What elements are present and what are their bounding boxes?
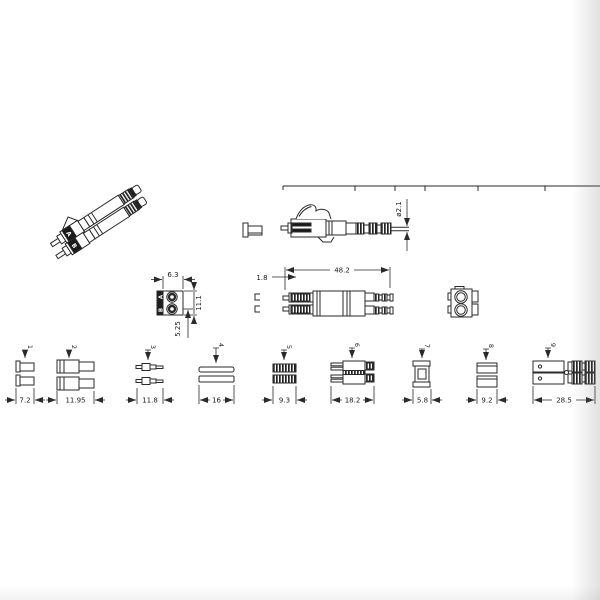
- part-8-number: 8: [487, 344, 495, 348]
- part-5-dim: 9.3: [279, 397, 290, 405]
- part-7-dim: 5.8: [417, 397, 428, 405]
- part-6-number: 6: [353, 343, 361, 347]
- dim-front-width-label: 6.3: [167, 271, 178, 279]
- side-view: [281, 205, 409, 242]
- part-4-number: 4: [217, 343, 225, 347]
- part-4-dim: 16: [212, 397, 221, 405]
- scan-edge-shading-right: [572, 0, 600, 600]
- linework-layer: B A: [0, 0, 600, 600]
- part-4: [199, 348, 234, 382]
- part-3-number: 3: [149, 345, 157, 349]
- part-6-dim: 18.2: [345, 397, 361, 405]
- plan-view: [255, 291, 393, 316]
- part-8: [477, 349, 497, 387]
- dim-cable-diameter-label: ø2.1: [395, 201, 403, 216]
- part-6: [331, 348, 374, 384]
- part-9-number: 9: [549, 343, 557, 347]
- scan-edge-shading-bottom: [0, 586, 600, 600]
- iso-view: B A: [42, 176, 150, 263]
- part-5-number: 5: [285, 345, 293, 349]
- part-8-dim: 9.2: [481, 397, 492, 405]
- rear-view: [448, 287, 478, 318]
- part-2: [57, 350, 94, 390]
- part-2-number: 2: [70, 345, 78, 349]
- part-1-dim: 7.2: [19, 397, 30, 405]
- dim-overall-length-label: 48.2: [334, 267, 350, 275]
- dim-front-pitch: [183, 309, 193, 338]
- iso-connector-b: B: [49, 188, 148, 263]
- part-1-number: 1: [26, 345, 34, 349]
- dim-ferrule-tip-label: 1.8: [256, 274, 267, 282]
- part-7: [413, 349, 430, 387]
- part-5: [273, 350, 296, 383]
- front-port-a-label: A: [159, 294, 165, 299]
- part-1: [16, 350, 34, 386]
- cable-reference-line: [283, 186, 600, 191]
- part-2-dim: 11.95: [65, 397, 85, 405]
- dust-cap-side-view: [243, 223, 262, 237]
- part-3-dim: 11.8: [142, 397, 158, 405]
- dim-front-pitch-label: 5.25: [174, 321, 182, 337]
- part-9-dim: 28.5: [556, 397, 572, 405]
- drawing-canvas: B A: [0, 0, 600, 600]
- part-3: [136, 350, 163, 385]
- dim-front-height-label: 11.1: [195, 295, 203, 311]
- front-port-b-label: B: [159, 308, 165, 312]
- part-7-number: 7: [423, 344, 431, 348]
